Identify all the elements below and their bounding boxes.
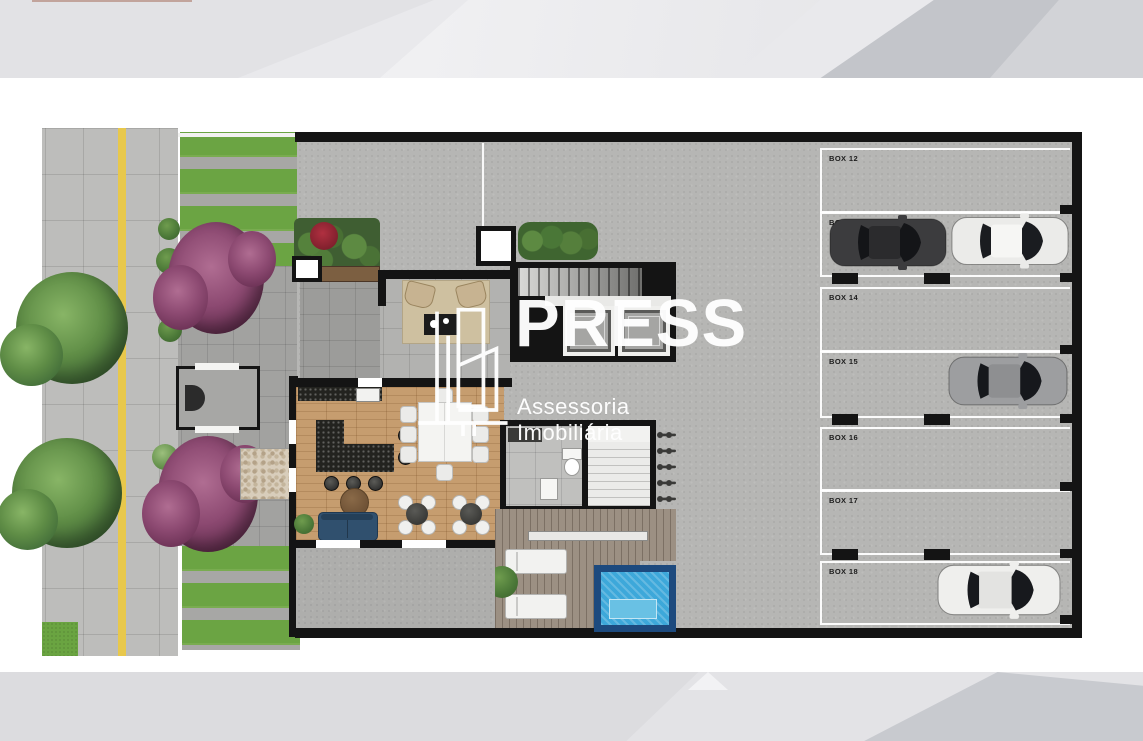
floorplan-render: BOX 12 BOX 13 BOX 14 BOX 15 BOX 16 BOX 1…: [0, 0, 1143, 741]
bistro-table: [460, 503, 482, 525]
sliding-door-opening: [316, 540, 360, 548]
car-dark-suv: [828, 214, 948, 271]
wall-bottom: [295, 628, 1082, 638]
lounge-wall: [378, 270, 510, 279]
wall-column-bump: [1060, 273, 1072, 282]
sofa-seam: [347, 520, 348, 538]
kitchen-sink: [356, 388, 380, 402]
swimming-pool: [594, 565, 676, 632]
car-white-suv: [936, 560, 1062, 620]
gatehouse-step: [195, 363, 239, 370]
car-white-sedan: [950, 212, 1070, 270]
parking-box: BOX 14: [820, 287, 1070, 352]
entry-step-box: [292, 256, 322, 282]
banner-bottom: [0, 672, 1143, 741]
sidewalk: [42, 128, 178, 656]
exercise-bike-icon: [656, 494, 680, 504]
wall-column-bump: [1060, 482, 1072, 491]
parking-box-label: BOX 14: [829, 293, 858, 302]
garden-bush: [158, 218, 180, 240]
tree-canopy: [16, 272, 128, 384]
parking-box: BOX 16: [820, 427, 1070, 491]
banner-bottom-facet-dark: [840, 672, 1143, 741]
courtyard-fence-line: [482, 143, 484, 227]
tree-canopy: [12, 438, 122, 548]
gatehouse-door: [185, 385, 205, 411]
staircase-white: [588, 442, 650, 506]
bistro-table: [406, 503, 428, 525]
sliding-door-opening: [402, 540, 446, 548]
lounge-wall-stub: [378, 270, 386, 306]
wall-column-bump: [1060, 549, 1072, 558]
red-flower-cluster: [310, 222, 338, 250]
sofa: [318, 512, 378, 541]
indoor-plant: [294, 514, 314, 534]
banner-top-facet-mid: [380, 0, 820, 78]
parking-box-label: BOX 18: [829, 567, 858, 576]
dining-chair: [400, 446, 417, 463]
sun-lounger: [505, 594, 567, 619]
column: [832, 273, 858, 284]
bar-stool: [368, 476, 383, 491]
entrance-gatehouse: [176, 366, 260, 430]
car-silver-sedan: [946, 352, 1070, 410]
bathroom-sink: [540, 478, 558, 500]
brand-wordmark: PRESS: [515, 290, 747, 357]
toilet-bowl: [564, 458, 580, 476]
parking-box-label: BOX 15: [829, 357, 858, 366]
watermark: PRESS Assessoria Imobiliária: [413, 288, 723, 433]
pool-step: [609, 599, 657, 619]
purple-shrub: [168, 222, 264, 334]
dining-chair: [436, 464, 453, 481]
column: [924, 273, 950, 284]
parking-box-label: BOX 12: [829, 154, 858, 163]
deck-bench: [528, 531, 648, 541]
wall-column-bump: [1060, 414, 1072, 423]
exercise-bike-icon: [656, 478, 680, 488]
buildings-outline-icon: [413, 306, 513, 436]
parking-box-label: BOX 16: [829, 433, 858, 442]
tactile-yellow-strip: [118, 128, 126, 656]
banner-bottom-facet-left: [0, 672, 720, 741]
terrace: [296, 548, 495, 628]
column: [832, 414, 858, 425]
wall-right: [1072, 132, 1082, 638]
parking-box-label: BOX 17: [829, 496, 858, 505]
kitchen-island: [316, 444, 394, 472]
column: [924, 549, 950, 560]
wall-top: [295, 132, 1082, 142]
entry-vestibule: [476, 226, 516, 266]
banner-top: [0, 0, 1143, 78]
gatehouse-step: [195, 426, 239, 433]
parking-box: BOX 17: [820, 490, 1070, 555]
column: [832, 549, 858, 560]
garden-fence-line: [178, 133, 300, 137]
grass-patch: [42, 622, 78, 656]
sun-lounger: [505, 549, 567, 574]
door-opening: [358, 378, 382, 387]
hedge: [518, 222, 598, 260]
planter-box: [312, 266, 380, 282]
column: [924, 414, 950, 425]
bar-stool: [324, 476, 339, 491]
brand-tagline: Assessoria Imobiliária: [517, 394, 723, 446]
dining-chair: [472, 446, 489, 463]
parking-box: BOX 12: [820, 148, 1070, 213]
garden-lawn-striped-bottom: [182, 546, 300, 650]
exercise-bike-icon: [656, 462, 680, 472]
exercise-bike-icon: [656, 446, 680, 456]
banner-top-accent-strip: [32, 0, 192, 2]
